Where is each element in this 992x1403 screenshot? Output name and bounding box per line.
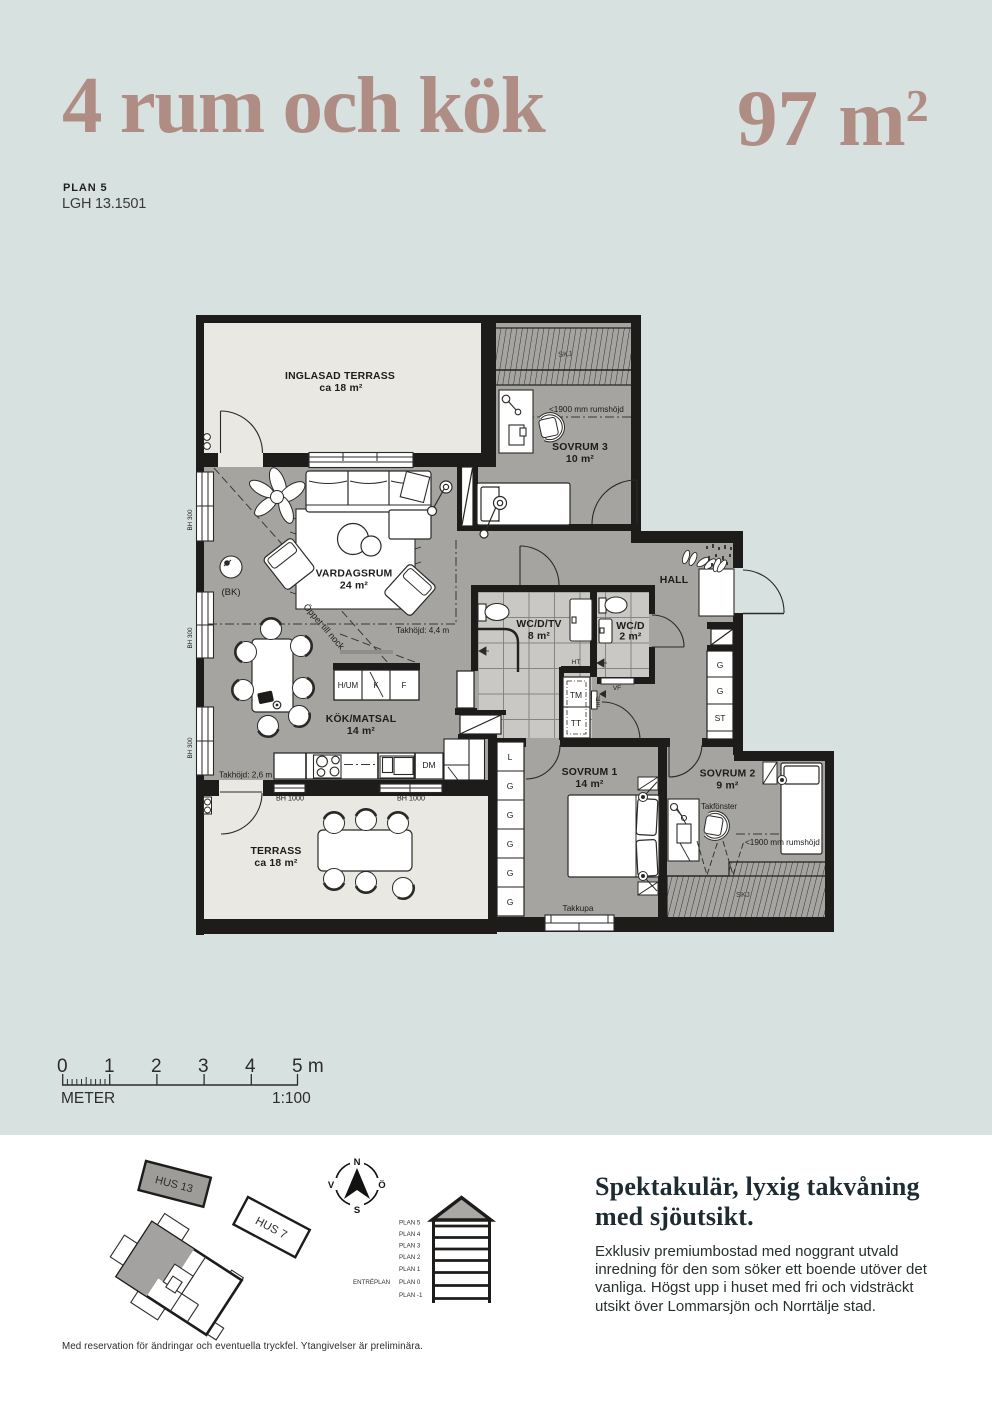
svg-text:1:100: 1:100 — [272, 1090, 311, 1107]
svg-text:1: 1 — [104, 1056, 115, 1077]
svg-text:S: S — [354, 1205, 360, 1216]
svg-text:H/UM: H/UM — [338, 681, 359, 690]
svg-text:14 m²: 14 m² — [347, 726, 375, 737]
svg-text:TERRASS: TERRASS — [250, 846, 301, 857]
svg-text:PLAN 0: PLAN 0 — [399, 1279, 421, 1286]
svg-text:Takhöjd: 2,6 m: Takhöjd: 2,6 m — [219, 771, 272, 780]
svg-text:G: G — [507, 839, 514, 849]
svg-text:9 m²: 9 m² — [716, 781, 739, 792]
svg-text:PLAN 4: PLAN 4 — [399, 1231, 421, 1238]
svg-text:G: G — [507, 897, 514, 907]
svg-text:G: G — [717, 660, 724, 670]
svg-text:ca 18 m²: ca 18 m² — [254, 858, 298, 869]
svg-text:5 m: 5 m — [292, 1056, 324, 1077]
svg-text:10 m²: 10 m² — [566, 454, 594, 465]
svg-text:BH 1000: BH 1000 — [276, 794, 304, 803]
svg-text:8 m²: 8 m² — [528, 631, 551, 642]
svg-text:IHEL: IHEL — [596, 695, 602, 707]
svg-text:0: 0 — [57, 1056, 68, 1077]
svg-text:BH 1000: BH 1000 — [397, 794, 425, 803]
svg-text:G: G — [717, 686, 724, 696]
svg-text:24 m²: 24 m² — [340, 581, 368, 592]
svg-text:ca 18 m²: ca 18 m² — [319, 383, 363, 394]
svg-text:2 m²: 2 m² — [619, 632, 642, 643]
svg-text:PLAN 3: PLAN 3 — [399, 1243, 421, 1250]
svg-text:BH 300: BH 300 — [187, 509, 194, 531]
svg-text:3: 3 — [198, 1056, 209, 1077]
svg-text:HALL: HALL — [660, 575, 689, 586]
svg-text:SKJ: SKJ — [736, 890, 750, 899]
svg-text:SOVRUM 1: SOVRUM 1 — [562, 767, 618, 778]
svg-text:ST: ST — [715, 713, 726, 723]
svg-text:Takfönster: Takfönster — [701, 802, 737, 811]
svg-text:<1900 mm rumshöjd: <1900 mm rumshöjd — [745, 838, 820, 847]
svg-text:L: L — [508, 752, 513, 762]
svg-text:V: V — [328, 1180, 335, 1191]
svg-text:VF: VF — [613, 685, 621, 692]
svg-text:HT: HT — [572, 659, 581, 666]
svg-text:4: 4 — [245, 1056, 256, 1077]
svg-text:INGLASAD TERRASS: INGLASAD TERRASS — [285, 371, 395, 382]
svg-text:WC/D: WC/D — [616, 621, 645, 632]
svg-text:<1900 mm rumshöjd: <1900 mm rumshöjd — [549, 405, 624, 414]
svg-text:(BK): (BK) — [222, 587, 241, 598]
svg-text:G: G — [507, 868, 514, 878]
svg-text:SKJ: SKJ — [558, 349, 573, 359]
svg-text:Ö: Ö — [378, 1180, 385, 1191]
svg-text:VARDAGSRUM: VARDAGSRUM — [316, 569, 393, 580]
svg-text:METER: METER — [61, 1090, 115, 1107]
svg-text:Takhöjd: 4,4 m: Takhöjd: 4,4 m — [396, 626, 449, 635]
svg-text:N: N — [354, 1157, 361, 1168]
svg-text:ENTRÉPLAN: ENTRÉPLAN — [353, 1279, 390, 1286]
svg-text:Takkupa: Takkupa — [563, 903, 594, 913]
svg-text:KÖK/MATSAL: KÖK/MATSAL — [326, 712, 397, 725]
svg-text:BH 300: BH 300 — [187, 737, 194, 759]
svg-text:14 m²: 14 m² — [575, 779, 603, 790]
svg-text:PLAN 2: PLAN 2 — [399, 1254, 421, 1261]
svg-text:SOVRUM 2: SOVRUM 2 — [700, 769, 756, 780]
svg-text:G: G — [507, 810, 514, 820]
svg-text:PLAN 5: PLAN 5 — [399, 1220, 421, 1227]
svg-text:PLAN -1: PLAN -1 — [399, 1292, 423, 1299]
svg-text:F: F — [402, 681, 407, 690]
svg-text:WC/D/TV: WC/D/TV — [516, 619, 561, 630]
svg-text:SOVRUM 3: SOVRUM 3 — [552, 442, 608, 453]
svg-text:G: G — [507, 781, 514, 791]
svg-text:BH 300: BH 300 — [187, 627, 194, 649]
svg-text:TM: TM — [570, 690, 582, 700]
svg-text:PLAN 1: PLAN 1 — [399, 1266, 421, 1273]
svg-text:TT: TT — [571, 718, 581, 728]
svg-text:2: 2 — [151, 1056, 162, 1077]
svg-text:DM: DM — [422, 760, 435, 770]
